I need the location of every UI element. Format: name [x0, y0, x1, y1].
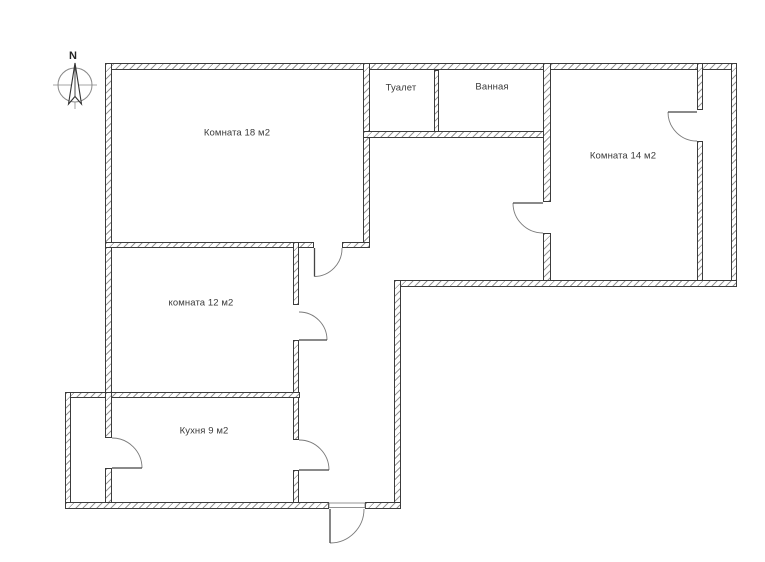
wall-bathroom-bottom	[363, 131, 551, 138]
wall-room18-bottom-left	[105, 242, 314, 248]
wall-balcony-left	[65, 392, 71, 509]
wall-room14-left-upper	[543, 63, 551, 202]
door-entrance	[329, 503, 365, 543]
room-label-toilet: Туалет	[386, 83, 417, 94]
door-room18	[315, 248, 343, 277]
compass-rose-icon	[53, 63, 97, 109]
wall-room14-right-upper	[697, 63, 703, 110]
door-kitchen-balcony	[112, 438, 142, 468]
wall-exterior-top	[105, 63, 737, 70]
floor-plan-canvas: N Комната 18 м2 Туалет Ванная Комната 14…	[0, 0, 765, 562]
room-label-room14: Комната 14 м2	[590, 151, 656, 162]
door-room14-hall	[513, 203, 543, 233]
north-compass: N	[15, 40, 135, 170]
wall-kitchen-left-upper	[105, 392, 112, 438]
wall-toilet-bathroom-partition	[434, 70, 439, 137]
room-label-room18: Комната 18 м2	[204, 128, 270, 139]
wall-room14-bottom	[397, 280, 737, 287]
wall-room12-right-upper	[293, 242, 299, 305]
wall-exterior-bottom-left	[65, 502, 329, 509]
room-label-bathroom: Ванная	[475, 82, 508, 93]
wall-room12-right-lower	[293, 340, 299, 440]
wall-exterior-right	[731, 63, 737, 287]
wall-corridor-right	[394, 280, 401, 509]
wall-room18-right	[363, 63, 370, 248]
door-room14-balcony	[668, 112, 697, 141]
wall-room12-bottom	[65, 392, 300, 398]
wall-room18-bottom-right	[342, 242, 370, 248]
room-label-room12: комната 12 м2	[169, 298, 234, 309]
compass-north-label: N	[69, 50, 77, 62]
door-room12	[299, 312, 327, 340]
wall-room14-left-lower	[543, 233, 551, 287]
wall-room14-right-lower	[697, 141, 703, 287]
door-kitchen-corridor	[299, 440, 329, 470]
wall-exterior-bottom-right	[365, 502, 401, 509]
room-label-kitchen: Кухня 9 м2	[180, 426, 229, 437]
wall-exterior-left	[105, 63, 112, 398]
